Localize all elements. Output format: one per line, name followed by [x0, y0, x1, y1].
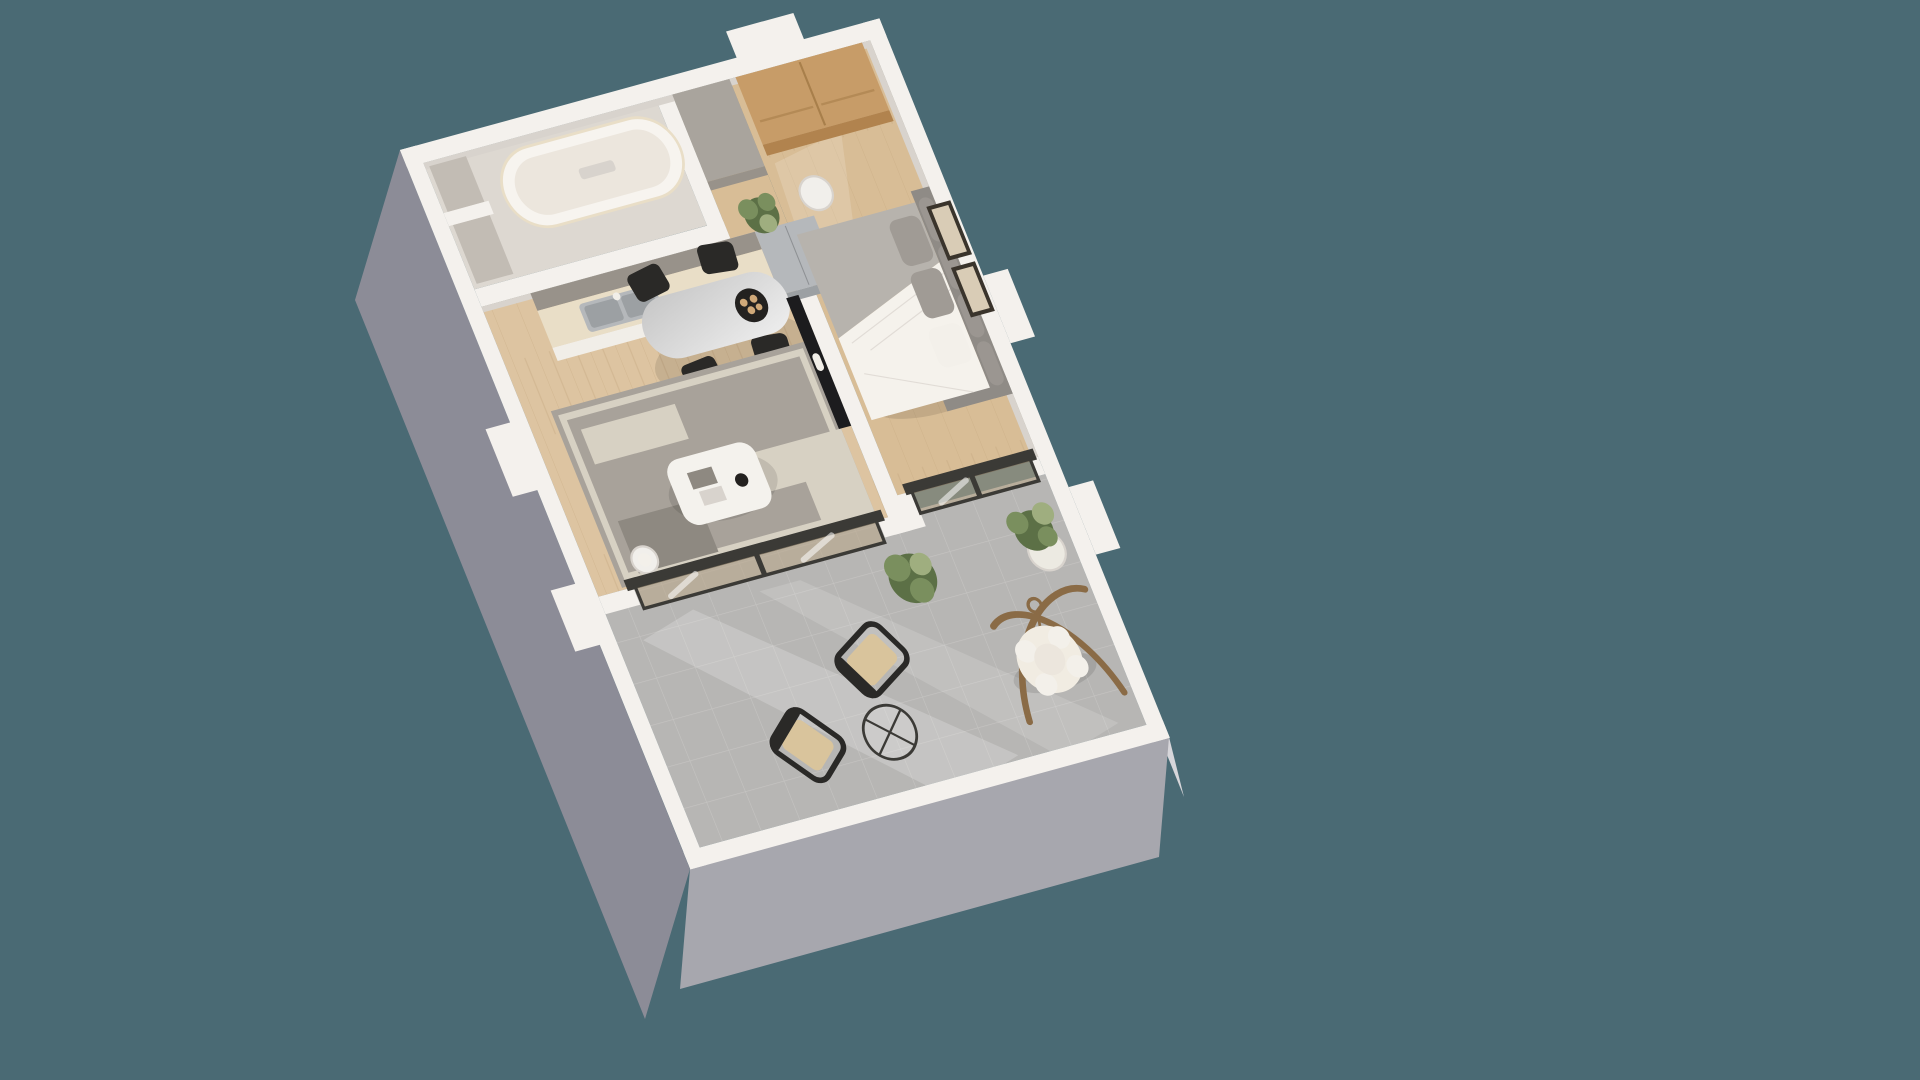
floorplan-render-stage: [0, 0, 1920, 1080]
apartment-floorplan-svg: [0, 0, 1920, 1080]
